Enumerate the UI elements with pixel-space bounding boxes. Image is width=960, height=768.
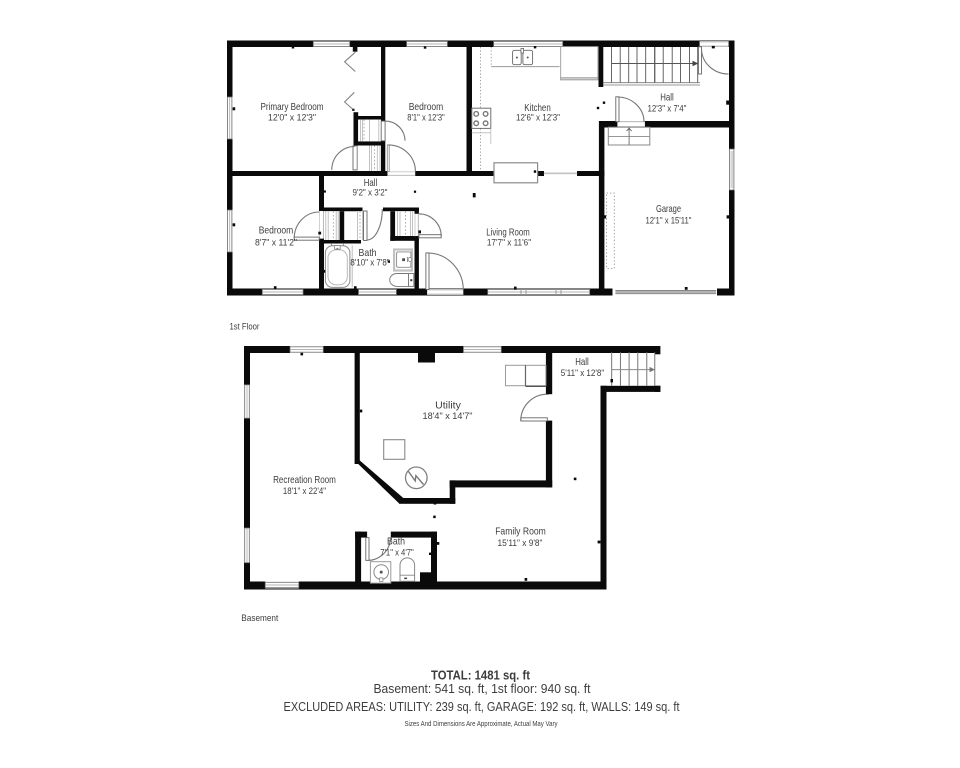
- svg-text:9'2" x 3'2": 9'2" x 3'2": [353, 188, 388, 198]
- svg-text:12'6" x 12'3": 12'6" x 12'3": [516, 113, 560, 123]
- svg-text:Sizes And Dimensions Are Appro: Sizes And Dimensions Are Approximate, Ac…: [405, 721, 558, 728]
- svg-text:1st Floor: 1st Floor: [230, 321, 260, 331]
- svg-text:Family Room: Family Room: [495, 527, 546, 538]
- svg-text:Primary Bedroom: Primary Bedroom: [261, 102, 324, 113]
- svg-text:12'3" x 7'4": 12'3" x 7'4": [648, 103, 687, 113]
- svg-text:TOTAL: 1481 sq. ft: TOTAL: 1481 sq. ft: [431, 669, 531, 683]
- svg-text:12'1" x 15'11": 12'1" x 15'11": [646, 215, 692, 225]
- svg-text:8'7" x 11'2": 8'7" x 11'2": [255, 237, 297, 247]
- svg-text:Hall: Hall: [575, 357, 589, 368]
- svg-text:12'0" x 12'3": 12'0" x 12'3": [268, 113, 316, 123]
- svg-text:17'7" x 11'6": 17'7" x 11'6": [487, 237, 531, 247]
- svg-text:Hall: Hall: [660, 92, 674, 103]
- svg-text:18'4" x 14'7": 18'4" x 14'7": [423, 411, 473, 421]
- svg-text:Bedroom: Bedroom: [259, 226, 294, 237]
- svg-text:Garage: Garage: [656, 204, 681, 215]
- svg-text:Basement: 541 sq. ft, 1st floo: Basement: 541 sq. ft, 1st floor: 940 sq.…: [374, 682, 591, 696]
- svg-text:15'11" x 9'8": 15'11" x 9'8": [498, 538, 543, 548]
- svg-text:Bath: Bath: [387, 536, 405, 547]
- svg-text:EXCLUDED AREAS: UTILITY: 239 s: EXCLUDED AREAS: UTILITY: 239 sq. ft, GAR…: [284, 700, 680, 714]
- svg-text:8'1" x 12'3": 8'1" x 12'3": [407, 113, 445, 123]
- svg-text:Basement: Basement: [241, 613, 278, 623]
- svg-text:7'1" x 4'7": 7'1" x 4'7": [380, 548, 414, 558]
- svg-text:Recreation Room: Recreation Room: [273, 475, 336, 486]
- svg-text:18'1" x 22'4": 18'1" x 22'4": [283, 486, 326, 496]
- svg-text:Bedroom: Bedroom: [409, 102, 444, 113]
- svg-text:5'11" x 12'8": 5'11" x 12'8": [561, 368, 604, 378]
- svg-text:8'10" x 7'8": 8'10" x 7'8": [350, 258, 389, 268]
